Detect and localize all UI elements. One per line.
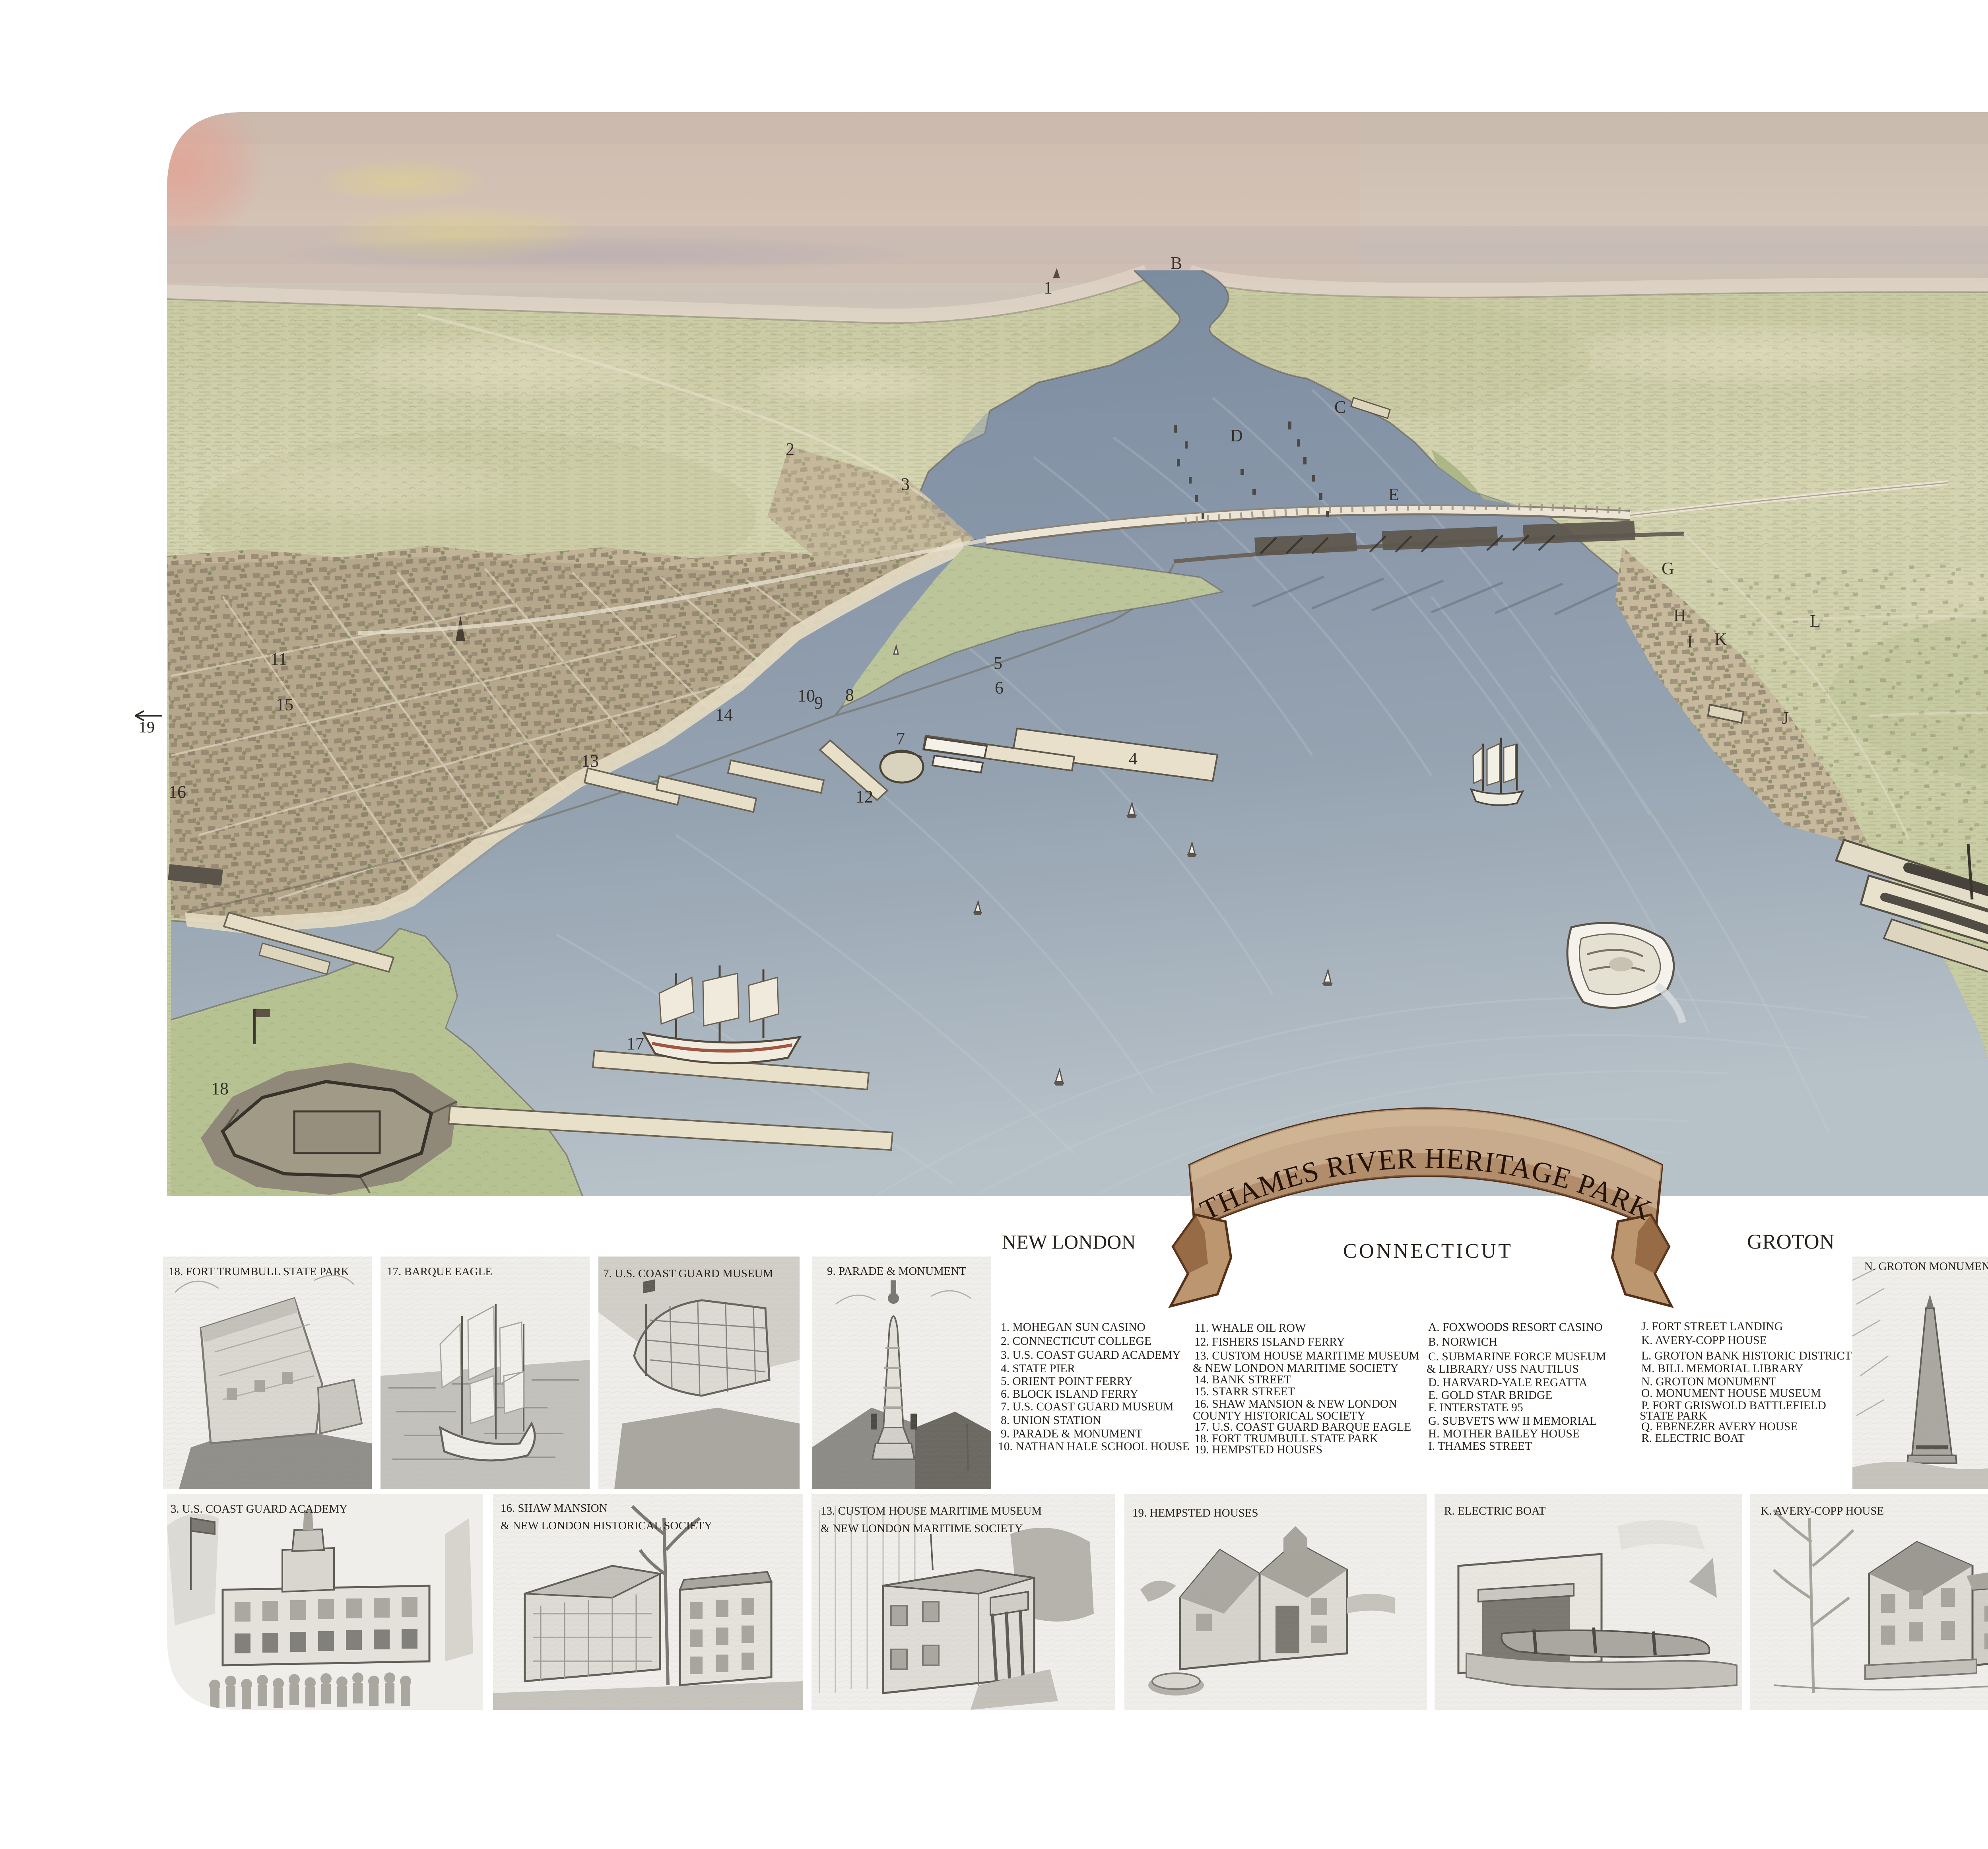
svg-text:& NEW LONDON MARITIME SOCIETY: & NEW LONDON MARITIME SOCIETY <box>1193 1362 1398 1375</box>
svg-text:R. ELECTRIC BOAT: R. ELECTRIC BOAT <box>1641 1432 1745 1445</box>
svg-text:19. HEMPSTED HOUSES: 19. HEMPSTED HOUSES <box>1194 1443 1322 1456</box>
svg-text:G: G <box>1662 559 1674 578</box>
svg-text:9: 9 <box>814 693 823 713</box>
svg-text:3. U.S. COAST GUARD ACADEMY: 3. U.S. COAST GUARD ACADEMY <box>1001 1349 1181 1362</box>
svg-text:C. SUBMARINE FORCE MUSEUM: C. SUBMARINE FORCE MUSEUM <box>1428 1350 1606 1363</box>
svg-text:8. UNION STATION: 8. UNION STATION <box>1001 1414 1101 1427</box>
svg-text:& NEW LONDON HISTORICAL SOCIET: & NEW LONDON HISTORICAL SOCIETY <box>501 1519 712 1532</box>
svg-text:17. BARQUE EAGLE: 17. BARQUE EAGLE <box>387 1265 492 1278</box>
svg-text:13: 13 <box>581 751 599 771</box>
svg-text:L: L <box>1810 611 1821 631</box>
svg-text:K: K <box>1714 629 1727 649</box>
svg-text:G. SUBVETS WW II MEMORIAL: G. SUBVETS WW II MEMORIAL <box>1428 1415 1597 1428</box>
svg-text:2. CONNECTICUT COLLEGE: 2. CONNECTICUT COLLEGE <box>1001 1335 1151 1348</box>
svg-text:M. BILL MEMORIAL LIBRARY: M. BILL MEMORIAL LIBRARY <box>1641 1362 1804 1375</box>
svg-text:4: 4 <box>1129 749 1138 768</box>
svg-text:7: 7 <box>896 729 905 748</box>
svg-text:J. FORT STREET LANDING: J. FORT STREET LANDING <box>1641 1320 1783 1333</box>
svg-text:D. HARVARD-YALE REGATTA: D. HARVARD-YALE REGATTA <box>1428 1376 1588 1389</box>
svg-text:6. BLOCK ISLAND FERRY: 6. BLOCK ISLAND FERRY <box>1001 1388 1138 1400</box>
svg-text:15. STARR STREET: 15. STARR STREET <box>1194 1385 1295 1398</box>
svg-text:1: 1 <box>1044 278 1052 297</box>
svg-text:3. U.S. COAST GUARD ACADEMY: 3. U.S. COAST GUARD ACADEMY <box>171 1503 348 1515</box>
svg-text:K. AVERY-COPP HOUSE: K. AVERY-COPP HOUSE <box>1761 1505 1884 1517</box>
svg-text:5: 5 <box>994 653 1002 673</box>
svg-text:K. AVERY-COPP HOUSE: K. AVERY-COPP HOUSE <box>1641 1334 1767 1347</box>
svg-text:5. ORIENT POINT FERRY: 5. ORIENT POINT FERRY <box>1001 1375 1133 1388</box>
svg-text:O. MONUMENT HOUSE MUSEUM: O. MONUMENT HOUSE MUSEUM <box>1641 1387 1821 1400</box>
svg-text:C: C <box>1334 397 1346 417</box>
svg-text:E: E <box>1388 485 1399 504</box>
svg-text:11: 11 <box>270 649 287 669</box>
svg-text:1. MOHEGAN SUN CASINO: 1. MOHEGAN SUN CASINO <box>1001 1321 1145 1334</box>
svg-text:GROTON: GROTON <box>1747 1230 1835 1253</box>
svg-text:I. THAMES STREET: I. THAMES STREET <box>1428 1440 1532 1453</box>
svg-text:10: 10 <box>798 686 815 705</box>
svg-text:& NEW LONDON MARITIME SOCIETY: & NEW LONDON MARITIME SOCIETY <box>821 1522 1023 1535</box>
svg-text:14: 14 <box>715 705 733 724</box>
svg-text:H: H <box>1673 606 1686 625</box>
svg-text:B: B <box>1171 253 1182 273</box>
svg-text:17. U.S. COAST GUARD BARQUE EA: 17. U.S. COAST GUARD BARQUE EAGLE <box>1194 1421 1411 1433</box>
svg-text:E. GOLD STAR BRIDGE: E. GOLD STAR BRIDGE <box>1428 1389 1552 1402</box>
svg-text:2: 2 <box>786 439 794 459</box>
svg-text:16: 16 <box>169 782 186 802</box>
svg-text:L. GROTON BANK HISTORIC DISTRI: L. GROTON BANK HISTORIC DISTRICT <box>1641 1350 1852 1362</box>
svg-text:14. BANK STREET: 14. BANK STREET <box>1194 1373 1291 1386</box>
svg-text:7. U.S. COAST GUARD MUSEUM: 7. U.S. COAST GUARD MUSEUM <box>603 1267 773 1280</box>
svg-text:Q. EBENEZER AVERY HOUSE: Q. EBENEZER AVERY HOUSE <box>1641 1420 1798 1433</box>
svg-text:10. NATHAN HALE SCHOOL HOUSE: 10. NATHAN HALE SCHOOL HOUSE <box>998 1440 1190 1453</box>
svg-text:I: I <box>1687 632 1693 651</box>
svg-text:8: 8 <box>845 685 854 705</box>
svg-text:11. WHALE OIL ROW: 11. WHALE OIL ROW <box>1194 1322 1306 1334</box>
svg-text:D: D <box>1230 426 1243 445</box>
svg-text:15: 15 <box>276 695 293 714</box>
svg-text:19. HEMPSTED HOUSES: 19. HEMPSTED HOUSES <box>1132 1507 1258 1519</box>
svg-text:CONNECTICUT: CONNECTICUT <box>1343 1240 1513 1262</box>
svg-text:7. U.S. COAST GUARD MUSEUM: 7. U.S. COAST GUARD MUSEUM <box>1001 1400 1174 1413</box>
svg-text:16. SHAW MANSION & NEW LONDON: 16. SHAW MANSION & NEW LONDON <box>1194 1398 1397 1410</box>
svg-text:13. CUSTOM HOUSE MARITIME MUSE: 13. CUSTOM HOUSE MARITIME MUSEUM <box>821 1505 1042 1517</box>
svg-text:9. PARADE & MONUMENT: 9. PARADE & MONUMENT <box>827 1265 966 1278</box>
svg-text:3: 3 <box>901 474 910 494</box>
svg-text:N. GROTON MONUMENT: N. GROTON MONUMENT <box>1864 1260 1988 1273</box>
svg-text:12: 12 <box>856 787 873 806</box>
svg-text:18: 18 <box>211 1079 229 1098</box>
svg-text:12. FISHERS ISLAND FERRY: 12. FISHERS ISLAND FERRY <box>1194 1336 1345 1348</box>
svg-text:B. NORWICH: B. NORWICH <box>1428 1336 1497 1348</box>
svg-text:H. MOTHER BAILEY HOUSE: H. MOTHER BAILEY HOUSE <box>1428 1428 1580 1440</box>
svg-text:F. INTERSTATE 95: F. INTERSTATE 95 <box>1428 1401 1523 1414</box>
svg-text:J: J <box>1782 708 1789 728</box>
svg-text:17: 17 <box>627 1034 644 1053</box>
svg-text:NEW LONDON: NEW LONDON <box>1002 1231 1136 1253</box>
svg-text:N. GROTON MONUMENT: N. GROTON MONUMENT <box>1641 1375 1776 1388</box>
svg-text:18. FORT TRUMBULL STATE PARK: 18. FORT TRUMBULL STATE PARK <box>169 1265 349 1278</box>
svg-text:16. SHAW MANSION: 16. SHAW MANSION <box>501 1502 608 1515</box>
svg-text:A. FOXWOODS RESORT CASINO: A. FOXWOODS RESORT CASINO <box>1428 1321 1603 1334</box>
svg-text:13. CUSTOM HOUSE MARITIME MUSE: 13. CUSTOM HOUSE MARITIME MUSEUM <box>1194 1350 1419 1362</box>
svg-text:6: 6 <box>995 678 1004 697</box>
svg-text:& LIBRARY/ USS NAUTILUS: & LIBRARY/ USS NAUTILUS <box>1427 1363 1579 1375</box>
svg-text:19: 19 <box>139 718 155 736</box>
svg-text:4. STATE PIER: 4. STATE PIER <box>1001 1362 1075 1375</box>
svg-text:R. ELECTRIC BOAT: R. ELECTRIC BOAT <box>1444 1505 1546 1517</box>
svg-text:9. PARADE & MONUMENT: 9. PARADE & MONUMENT <box>1001 1428 1142 1440</box>
